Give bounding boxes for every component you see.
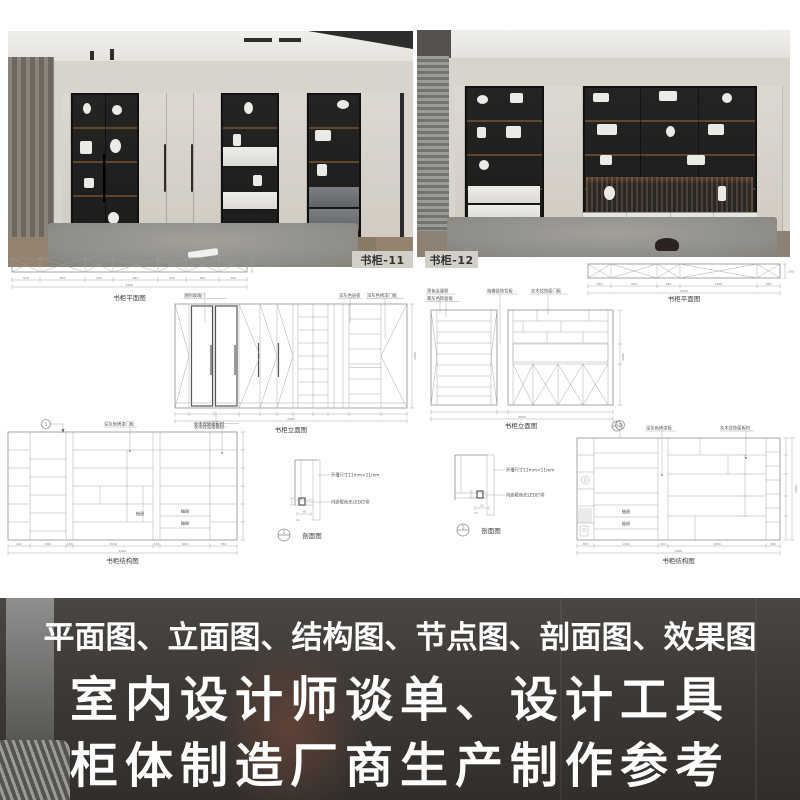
svg-text:530: 530 [221,542,227,546]
elevation-right-title: 书柜立面图 [505,421,538,430]
elevation-left-title: 书柜立面图 [275,425,308,434]
svg-text:280: 280 [788,270,794,274]
svg-text:200: 200 [660,542,666,546]
callout-glass-door: 透明玻璃门 [184,292,205,299]
svg-text:1: 1 [45,422,48,427]
svg-text:130: 130 [154,542,160,546]
bag-on-rug [655,238,679,251]
svg-text:280: 280 [770,542,776,546]
structure-right-title: 书柜结构图 [662,556,695,565]
window-blind [417,56,449,238]
recessed-light-slit [244,38,272,42]
svg-text:11: 11 [296,518,300,522]
area-rug [447,217,777,257]
plan-right-title: 书柜平面图 [668,294,701,303]
svg-text:1540: 1540 [109,542,117,546]
svg-text:2680: 2680 [794,485,798,493]
svg-text:4400: 4400 [287,417,295,421]
svg-text:280: 280 [254,264,260,268]
banner-line-2: 室内设计师谈单、设计工具 [0,660,800,730]
elevation-view-left: 透明玻璃门 深灰色层板 深灰色烤漆门板 灰木纹免漆板材 4400 2680 书柜… [175,292,417,434]
callout-groove-size: 开槽尺寸11mm×11mm [331,472,379,479]
svg-text:130: 130 [67,542,73,546]
callout-veneer-panel: 灰木纹饰面板材 [720,425,751,432]
drawer-label: 抽屉 [181,520,189,527]
svg-text:11: 11 [474,511,478,515]
structure-view-right: 抽屉 抽屉 1 深灰色烤漆板 灰木纹饰面板材 2680 330 1260 200… [577,421,798,566]
callout-veneer-door: 灰木纹饰面门板 [531,288,562,295]
banner-line-1: 平面图、立面图、结构图、节点图、剖面图、效果图 [0,612,800,657]
callout-fluted-back: 格栅装饰背板 [487,288,513,295]
svg-text:4000: 4000 [675,549,683,553]
svg-text:480: 480 [666,282,672,286]
svg-text:960: 960 [631,282,637,286]
svg-text:1: 1 [619,423,622,428]
banner-line-3: 柜体制造厂商生产制作参考 [0,726,800,796]
svg-text:330: 330 [583,542,589,546]
structure-left-title: 书柜结构图 [106,556,139,565]
plan-left-title: 书柜平面图 [113,293,146,302]
curtain [8,57,54,247]
callout-veneer-panel: 灰木纹饰面板材 [194,421,225,428]
elevation-view-right: 黑色金属框 暖灰色饰面板 格栅装饰背板 灰木纹饰面门板 4000 2680 书柜… [426,288,625,432]
callout-warm-gray-panel: 暖灰色饰面板 [427,295,453,302]
svg-text:1600: 1600 [715,282,723,286]
render-photo-right [417,30,790,257]
section-detail-left: 开槽尺寸11mm×11mm 内嵌暖色光LED灯带 30 11 1 剖面图 [278,460,379,541]
drawer-label: 抽屉 [181,508,189,515]
section-bubble: 1 [42,420,65,434]
poster-page: 书柜-11 书柜-12 520 840 520 840 520 [0,0,800,800]
svg-text:2680: 2680 [413,352,417,360]
svg-text:1: 1 [283,530,286,535]
svg-text:4400: 4400 [119,549,127,553]
structure-view-left: 抽屉 抽屉 抽屉 1 深灰色烤漆门板 灰木纹饰面板材 420 690 130 1… [8,420,246,566]
track-light [90,51,94,60]
svg-text:30: 30 [302,510,306,514]
svg-text:540: 540 [230,276,236,280]
section-bubble: 1 [278,529,290,541]
section-detail-right: 开槽尺寸11mm×11mm 内嵌暖色光LED灯带 30 11 1 剖面图 [455,455,554,536]
svg-text:1: 1 [462,525,465,530]
svg-text:480: 480 [597,282,603,286]
svg-text:4400: 4400 [126,283,134,287]
svg-text:30: 30 [480,504,484,508]
svg-text:520: 520 [169,276,175,280]
callout-gray-shelf: 深灰色层板 [339,292,361,299]
callout-lacquer-door: 深灰色烤漆门板 [104,421,135,428]
svg-text:620: 620 [200,276,206,280]
track-light [110,49,114,60]
svg-text:420: 420 [16,542,22,546]
svg-text:840: 840 [60,276,66,280]
section-detail-title: 剖面图 [302,531,322,540]
cad-drawings: 520 840 520 840 520 620 540 4400 280 书柜平… [0,253,800,585]
banner: 平面图、立面图、结构图、节点图、剖面图、效果图 室内设计师谈单、设计工具 柜体制… [0,598,800,800]
drawer-label: 抽屉 [136,510,144,517]
svg-text:2680: 2680 [621,353,625,361]
svg-text:4000: 4000 [680,289,688,293]
svg-text:690: 690 [45,542,51,546]
svg-text:960: 960 [182,542,188,546]
svg-text:1930: 1930 [713,542,721,546]
recessed-light-slit [279,38,301,42]
svg-text:4000: 4000 [518,415,526,419]
svg-text:520: 520 [96,276,102,280]
drawer-label: 抽屉 [622,520,630,527]
callout-lacquer-panel: 深灰色烤漆板 [646,425,672,432]
render-photo-left [8,31,413,267]
callout-lacquer-door: 深灰色烤漆门板 [367,292,398,299]
svg-text:520: 520 [23,276,29,280]
plan-view-left: 520 840 520 840 520 620 540 4400 280 书柜平… [12,258,260,302]
section-detail-title: 剖面图 [481,526,501,535]
section-bubble: 1 [457,524,469,536]
callout-metal-frame: 黑色金属框 [427,288,449,295]
drawer-label: 抽屉 [622,508,630,515]
svg-text:840: 840 [133,276,139,280]
callout-groove-size: 开槽尺寸11mm×11mm [506,467,554,474]
svg-text:1260: 1260 [622,542,630,546]
callout-led-strip: 内嵌暖色光LED灯带 [331,499,370,506]
plan-view-right: 480 960 480 1600 480 4000 280 书柜平面图 [588,264,794,303]
callout-led-strip: 内嵌暖色光LED灯带 [506,492,545,499]
svg-text:480: 480 [766,282,772,286]
